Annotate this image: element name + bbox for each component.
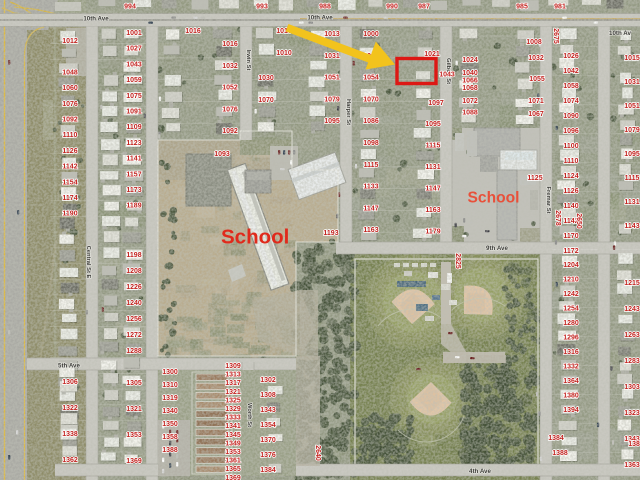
svg-text:1384: 1384: [628, 441, 640, 448]
svg-text:988: 988: [319, 4, 331, 11]
svg-text:1026: 1026: [563, 53, 579, 60]
svg-text:1363: 1363: [624, 462, 640, 469]
svg-text:Central St E: Central St E: [85, 246, 91, 279]
svg-text:1012: 1012: [62, 38, 78, 45]
svg-text:1210: 1210: [563, 277, 579, 284]
svg-text:Fremar St: Fremar St: [545, 186, 551, 213]
svg-text:1204: 1204: [563, 262, 579, 269]
svg-text:1076: 1076: [62, 101, 78, 108]
svg-text:1198: 1198: [126, 252, 141, 259]
svg-text:1325: 1325: [225, 397, 241, 404]
svg-text:1321: 1321: [126, 406, 142, 413]
svg-text:1174: 1174: [62, 195, 77, 202]
svg-text:1079: 1079: [624, 127, 640, 134]
svg-text:Worth St: Worth St: [246, 403, 252, 427]
svg-text:1388: 1388: [552, 450, 568, 457]
svg-text:1096: 1096: [563, 128, 579, 135]
svg-text:1015: 1015: [624, 55, 640, 62]
svg-text:1317: 1317: [225, 380, 241, 387]
svg-text:1163: 1163: [363, 227, 378, 234]
svg-text:1364: 1364: [563, 378, 579, 385]
svg-text:985: 985: [516, 4, 528, 11]
svg-text:1172: 1172: [563, 248, 578, 255]
svg-text:1369: 1369: [126, 458, 142, 465]
svg-text:1142: 1142: [62, 164, 77, 171]
svg-text:1173: 1173: [126, 187, 141, 194]
svg-text:1093: 1093: [214, 151, 230, 158]
svg-text:1131: 1131: [624, 199, 639, 206]
svg-text:1306: 1306: [62, 379, 78, 386]
svg-text:1365: 1365: [225, 466, 241, 473]
svg-text:1384: 1384: [548, 435, 564, 442]
svg-text:1303: 1303: [624, 384, 640, 391]
svg-text:1000: 1000: [363, 31, 379, 38]
svg-text:1124: 1124: [563, 173, 578, 180]
svg-text:1240: 1240: [126, 300, 142, 307]
svg-text:2825: 2825: [454, 253, 461, 269]
svg-text:1170: 1170: [563, 233, 578, 240]
svg-text:1380: 1380: [563, 393, 579, 400]
svg-text:1296: 1296: [563, 335, 579, 342]
svg-text:993: 993: [256, 4, 268, 11]
svg-text:1254: 1254: [563, 306, 579, 313]
svg-text:1189: 1189: [126, 203, 141, 210]
svg-text:1016: 1016: [222, 41, 238, 48]
svg-text:1054: 1054: [363, 75, 379, 82]
svg-text:1302: 1302: [260, 377, 276, 384]
svg-text:1032: 1032: [528, 55, 544, 62]
svg-text:1095: 1095: [624, 151, 640, 158]
svg-text:1394: 1394: [563, 407, 579, 414]
svg-text:1066: 1066: [462, 78, 478, 85]
svg-text:1095: 1095: [425, 121, 441, 128]
svg-text:1031: 1031: [624, 79, 640, 86]
svg-text:1010: 1010: [276, 50, 292, 57]
svg-text:1353: 1353: [126, 432, 142, 439]
svg-text:1055: 1055: [529, 76, 545, 83]
svg-text:1048: 1048: [62, 69, 78, 76]
svg-text:1332: 1332: [563, 364, 579, 371]
svg-text:1115: 1115: [364, 162, 379, 169]
svg-text:1309: 1309: [225, 363, 241, 370]
svg-text:2675: 2675: [552, 28, 559, 44]
svg-text:1349: 1349: [225, 440, 241, 447]
svg-text:1154: 1154: [62, 179, 77, 186]
svg-text:1362: 1362: [62, 457, 78, 464]
svg-text:1350: 1350: [162, 421, 178, 428]
svg-text:1075: 1075: [126, 93, 142, 100]
svg-text:1300: 1300: [162, 369, 178, 376]
svg-text:1193: 1193: [323, 230, 338, 237]
svg-text:1322: 1322: [62, 405, 78, 412]
svg-text:2640: 2640: [314, 445, 321, 461]
svg-text:1013: 1013: [324, 31, 340, 38]
svg-text:1305: 1305: [126, 380, 142, 387]
svg-text:1321: 1321: [225, 389, 241, 396]
svg-text:1070: 1070: [258, 97, 274, 104]
svg-text:1109: 1109: [126, 124, 141, 131]
svg-text:2678: 2678: [554, 210, 561, 226]
svg-text:1140: 1140: [563, 203, 578, 210]
svg-text:1163: 1163: [425, 207, 440, 214]
svg-text:1341: 1341: [225, 423, 241, 430]
svg-text:2650: 2650: [575, 213, 582, 229]
svg-text:1190: 1190: [62, 211, 77, 218]
svg-text:1147: 1147: [363, 205, 378, 212]
svg-text:1123: 1123: [126, 140, 141, 147]
svg-text:1092: 1092: [62, 117, 78, 124]
svg-text:1338: 1338: [62, 431, 78, 438]
svg-text:1115: 1115: [426, 143, 441, 150]
svg-text:1051: 1051: [324, 75, 340, 82]
svg-text:1354: 1354: [260, 422, 276, 429]
svg-text:1070: 1070: [363, 96, 379, 103]
svg-text:981: 981: [554, 4, 566, 11]
svg-text:School: School: [221, 226, 289, 249]
svg-text:1024: 1024: [462, 57, 478, 64]
svg-text:1100: 1100: [563, 143, 578, 150]
svg-text:1110: 1110: [63, 132, 78, 139]
svg-text:1098: 1098: [363, 140, 379, 147]
svg-text:1092: 1092: [222, 128, 238, 135]
svg-text:1384: 1384: [260, 467, 276, 474]
svg-text:1059: 1059: [126, 77, 142, 84]
svg-text:994: 994: [124, 4, 136, 11]
svg-text:1086: 1086: [363, 118, 379, 125]
svg-text:1333: 1333: [225, 415, 241, 422]
svg-text:1095: 1095: [324, 118, 340, 125]
svg-text:5th Ave: 5th Ave: [58, 363, 80, 370]
svg-text:1126: 1126: [62, 148, 77, 155]
svg-text:1376: 1376: [260, 452, 276, 459]
svg-text:1179: 1179: [425, 229, 440, 236]
svg-text:1283: 1283: [624, 358, 640, 365]
svg-text:1208: 1208: [126, 268, 142, 275]
svg-text:10th Ave: 10th Ave: [307, 15, 333, 22]
svg-text:1115: 1115: [625, 175, 640, 182]
svg-text:1052: 1052: [222, 85, 238, 92]
svg-text:4th Ave: 4th Ave: [469, 468, 491, 475]
svg-text:1316: 1316: [563, 349, 579, 356]
svg-text:1058: 1058: [563, 83, 579, 90]
svg-text:1143: 1143: [624, 223, 639, 230]
svg-text:1068: 1068: [462, 85, 478, 92]
svg-text:1090: 1090: [563, 113, 579, 120]
svg-text:9th Ave: 9th Ave: [486, 245, 508, 252]
svg-text:1340: 1340: [162, 408, 178, 415]
svg-text:1310: 1310: [162, 382, 178, 389]
svg-text:1030: 1030: [258, 75, 274, 82]
svg-text:1353: 1353: [225, 449, 241, 456]
svg-text:1032: 1032: [222, 63, 238, 70]
svg-text:Harper St: Harper St: [345, 99, 351, 125]
svg-text:1215: 1215: [624, 280, 640, 287]
svg-text:1141: 1141: [126, 156, 141, 163]
svg-text:1110: 1110: [564, 158, 579, 165]
svg-text:1097: 1097: [428, 100, 444, 107]
svg-text:1072: 1072: [462, 98, 478, 105]
svg-text:1370: 1370: [260, 437, 276, 444]
svg-text:1067: 1067: [528, 111, 544, 118]
svg-text:10th Av: 10th Av: [609, 30, 631, 37]
svg-text:1088: 1088: [462, 110, 478, 117]
svg-text:1243: 1243: [624, 306, 640, 313]
svg-text:1079: 1079: [324, 96, 340, 103]
svg-text:1308: 1308: [260, 392, 276, 399]
svg-text:1126: 1126: [563, 188, 578, 195]
svg-text:1016: 1016: [185, 28, 201, 35]
svg-text:1060: 1060: [62, 85, 78, 92]
svg-text:1043: 1043: [126, 61, 142, 68]
svg-text:1288: 1288: [126, 348, 142, 355]
svg-text:10th Ave: 10th Ave: [83, 16, 109, 23]
svg-text:School: School: [468, 190, 520, 207]
svg-text:1076: 1076: [222, 106, 238, 113]
svg-text:1323: 1323: [624, 410, 640, 417]
svg-text:1361: 1361: [225, 458, 241, 465]
svg-text:1272: 1272: [126, 332, 142, 339]
svg-text:1263: 1263: [624, 332, 640, 339]
svg-text:1319: 1319: [162, 395, 178, 402]
svg-text:1313: 1313: [225, 372, 241, 379]
svg-text:1071: 1071: [528, 98, 544, 105]
svg-text:987: 987: [418, 4, 430, 11]
svg-text:1388: 1388: [162, 447, 178, 454]
svg-text:1091: 1091: [126, 109, 142, 116]
svg-text:1369: 1369: [225, 475, 241, 480]
svg-text:1051: 1051: [624, 103, 640, 110]
svg-text:1157: 1157: [126, 171, 141, 178]
svg-text:1040: 1040: [462, 70, 478, 77]
svg-text:1133: 1133: [363, 184, 378, 191]
svg-text:Irwin St: Irwin St: [245, 50, 251, 71]
svg-text:1074: 1074: [563, 98, 579, 105]
svg-text:1008: 1008: [526, 39, 542, 46]
svg-text:1329: 1329: [225, 406, 241, 413]
svg-text:1280: 1280: [563, 320, 579, 327]
svg-text:1226: 1226: [126, 284, 142, 291]
svg-text:1147: 1147: [425, 186, 440, 193]
svg-text:1125: 1125: [527, 175, 542, 182]
svg-text:1027: 1027: [126, 46, 142, 53]
svg-text:1001: 1001: [126, 30, 142, 37]
svg-text:990: 990: [386, 4, 398, 11]
svg-text:1242: 1242: [563, 291, 579, 298]
svg-text:1256: 1256: [126, 316, 142, 323]
svg-text:1031: 1031: [324, 53, 340, 60]
svg-text:1345: 1345: [225, 432, 241, 439]
svg-text:1358: 1358: [162, 434, 178, 441]
svg-text:1043: 1043: [439, 72, 455, 79]
svg-text:1042: 1042: [563, 68, 579, 75]
svg-text:1131: 1131: [425, 164, 440, 171]
svg-text:1343: 1343: [260, 407, 276, 414]
